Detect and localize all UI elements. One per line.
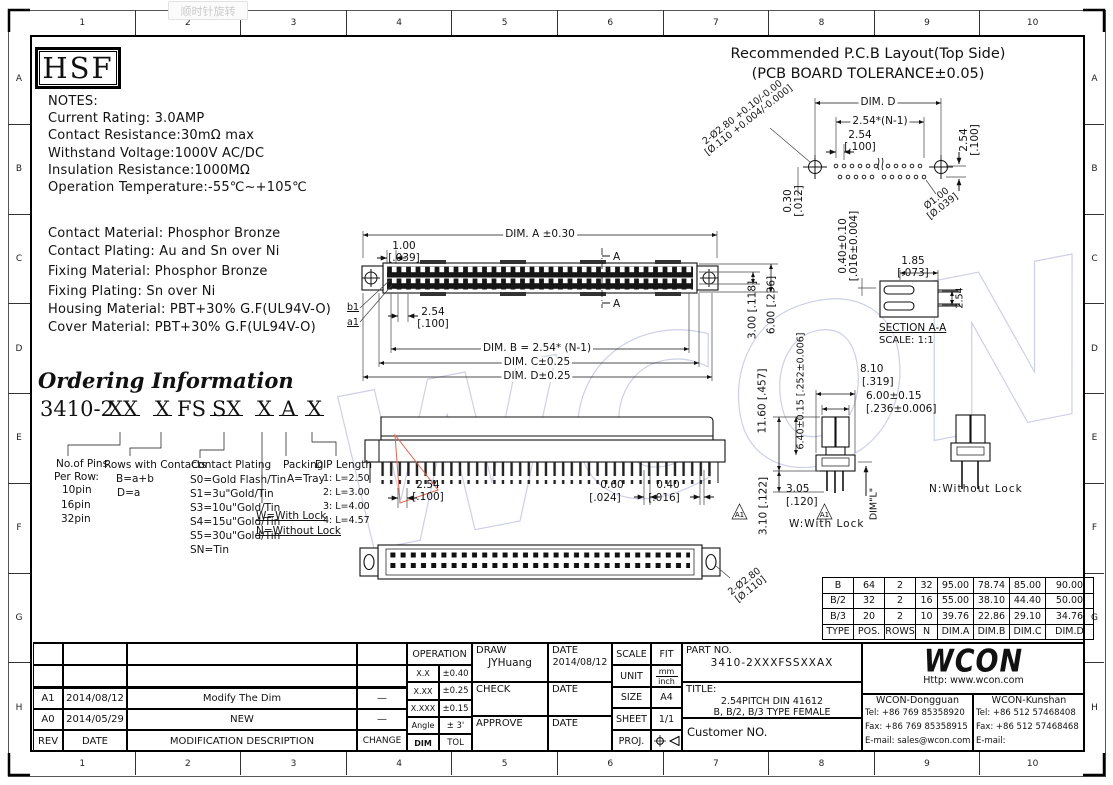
legend-pins-32: 32pin [61, 513, 91, 525]
wcon-kunshan-cell: WCON-Kunshan Tel: +86 512 57468408 Fax: … [973, 694, 1085, 752]
note-contact-resistance: Contact Resistance:30mΩ max [48, 130, 254, 142]
dim-a-label: DIM. A ±0.30 [503, 229, 577, 240]
dongguan-name: WCON-Dongguan [863, 695, 972, 706]
cell: 16 [916, 593, 938, 609]
part-no-cell: PART NO. 3410-2XXXFSSXXAX [682, 643, 862, 682]
rev-header: REV [33, 730, 63, 752]
section-mark-bottom: A [613, 298, 620, 310]
legend-plating-s1: S1=3u"Gold/Tin [190, 488, 274, 500]
title-block-top-line [33, 642, 1085, 644]
cell: 90.00 [1046, 578, 1094, 594]
tol-tol-label: TOL [439, 734, 472, 752]
legend-rows-d: D=a [117, 487, 140, 499]
check-date-cell: DATE [548, 682, 612, 716]
legend-lock-w: W=With Lock [256, 510, 326, 522]
header-cell: DIM.D [1046, 624, 1094, 640]
connector-bottom-view [360, 545, 730, 579]
lead-in: [.039] [388, 252, 420, 264]
tol-xx-value: ±0.40 [439, 665, 472, 682]
tol-dim-label: DIM [407, 734, 439, 752]
cell: 10 [916, 609, 938, 625]
legend-pins-title2: Per Row: [54, 471, 99, 483]
section-tolerance: 0.40±0.10[.016±0.004] [838, 211, 860, 281]
header-cell: TYPE [823, 624, 854, 640]
scale-label: SCALE [612, 643, 651, 665]
title-label: TITLE: [683, 683, 861, 696]
material-housing: Housing Material: PBT+30% G.F(UL94V-O) [48, 304, 331, 316]
rev-cell-empty [33, 643, 63, 665]
tol-xxxx-value: ±0.15 [439, 700, 472, 717]
lv-640: 6.40±0.15 [.252±0.006] [796, 332, 807, 449]
rev-change-header: CHANGE [357, 730, 407, 752]
sv-pin2-mm: 0.40 [656, 479, 679, 491]
sheet-value: 1/1 [651, 708, 682, 730]
kunshan-fax: Fax: +86 512 57468468 [974, 720, 1084, 734]
pcb-offset: 0.30[.012] [783, 185, 805, 217]
legend-dip-title: DIP Length [315, 459, 372, 471]
lv-310: 3.10 [.122] [759, 477, 770, 535]
legend-pins-10: 10pin [62, 484, 92, 496]
ordering-title: Ordering Information [38, 375, 294, 387]
tol-xxxx-label: X.XXX [407, 700, 439, 717]
unit-label: UNIT [612, 665, 651, 687]
tol-angle-value: ± 3' [439, 717, 472, 734]
code-lock: X [255, 403, 274, 416]
section-pitch: 2.54 [955, 287, 966, 308]
sv-pin1-mm: 0.60 [600, 479, 623, 491]
row-a1-label: a1 [347, 317, 359, 329]
svg-text:A1: A1 [735, 511, 744, 519]
part-no-label: PART NO. [683, 644, 861, 657]
cell: 20 [854, 609, 885, 625]
draw-date: 2014/08/12 [549, 657, 611, 668]
cell: 32 [916, 578, 938, 594]
legend-packing-tray: A=Tray [287, 473, 325, 485]
title-cell: TITLE: 2.54PITCH DIN 41612 B, B/2, B/3 T… [682, 682, 862, 718]
section-w-mm: 1.85 [901, 255, 924, 267]
lv-600-in: [.236±0.006] [866, 403, 936, 415]
wcon-dongguan-cell: WCON-Dongguan Tel: +86 769 85358920 Fax:… [862, 694, 973, 752]
code-plating: SX [210, 403, 243, 416]
approve-label: APPROVE [473, 717, 547, 730]
rev-desc-header: MODIFICATION DESCRIPTION [127, 730, 357, 752]
size-label: SIZE [612, 687, 651, 708]
tol-xx-label: X.X [407, 665, 439, 682]
part-number: 3410-2XXXFSSXXAX [683, 657, 861, 669]
projection-symbol [651, 730, 682, 752]
code-packing: A [279, 403, 298, 416]
pcb-pitch-mm: 2.54 [848, 129, 871, 141]
cell: 39.76 [938, 609, 974, 625]
legend-plating-title: Contact Plating [191, 459, 271, 471]
dim-b-label: DIM. B = 2.54* (N-1) [481, 343, 593, 354]
material-cover: Cover Material: PBT+30% G.F(UL94V-O) [48, 322, 316, 334]
approve-cell: APPROVE [472, 716, 548, 752]
section-w-in: [.073] [897, 267, 929, 279]
tol-angle-label: Angle [407, 717, 439, 734]
draw-cell: DRAW JYHuang [472, 643, 548, 682]
date-label: DATE [549, 644, 611, 657]
legend-dip-2: 2: L=3.00 [323, 487, 370, 499]
pcb-tolerance: (PCB BOARD TOLERANCE±0.05) [752, 68, 985, 80]
lv-810-in: [.319] [862, 376, 894, 388]
material-fixing-plating: Fixing Plating: Sn over Ni [48, 286, 215, 298]
tol-xxx-label: X.XX [407, 682, 439, 700]
dim-c-label: DIM. C±0.25 [502, 357, 572, 368]
customer-no-label: Customer NO. [683, 719, 861, 745]
pcb-row-pitch: 2.54[.100] [959, 124, 981, 156]
rev-date-header: DATE [63, 730, 127, 752]
pcb-pitch-span: 2.54*(N-1) [850, 116, 909, 127]
lv-600-mm: 6.00±0.15 [866, 390, 922, 402]
tv-body-height: 6.00 [.236] [767, 276, 778, 334]
sv-pin2-in: [.016] [648, 492, 680, 504]
notes-title: NOTES: [48, 96, 98, 108]
drawing-sheet: 顺时针旋转 12345678910 12345678910 ABCDEFGH A… [0, 0, 1113, 785]
legend-dip-3: 3: L=4.00 [323, 501, 370, 513]
row-b1-label: b1 [347, 302, 359, 314]
lv-dim-l: DIM"L" [869, 488, 880, 520]
drawing-title-2: B, B/2, B/3 TYPE FEMALE [683, 707, 861, 718]
rev-cell-empty [357, 643, 407, 665]
tv-pitch-in: [.100] [417, 318, 449, 330]
cell: 85.00 [1010, 578, 1046, 594]
cell: 38.10 [974, 593, 1010, 609]
size-table: B 64 2 32 95.00 78.74 85.00 90.00 B/2 32… [822, 577, 1094, 640]
first-angle-projection-icon [653, 734, 681, 748]
material-contact: Contact Material: Phosphor Bronze [48, 228, 280, 240]
rev-a1-change: — [357, 687, 407, 709]
note-current-rating: Current Rating: 3.0AMP [48, 113, 204, 125]
code-base: 3410-2 [40, 403, 114, 415]
dongguan-email: E-mail: sales@wcon.com [863, 734, 972, 748]
tol-xxx-value: ±0.25 [439, 682, 472, 700]
hsf-logo-text: HSF [39, 51, 117, 85]
cell: 50.00 [1046, 593, 1094, 609]
header-cell: N [916, 624, 938, 640]
rev-a0-change: — [357, 709, 407, 730]
tv-row-height: 3.00 [.118] [748, 281, 759, 339]
cell: 2 [885, 578, 916, 594]
dongguan-tel: Tel: +86 769 85358920 [863, 706, 972, 720]
draw-date-cell: DATE 2014/08/12 [548, 643, 612, 682]
section-mark-top: A [613, 251, 620, 263]
code-pins: XX [106, 403, 140, 416]
note-insulation-resistance: Insulation Resistance:1000MΩ [48, 165, 250, 177]
cell: 78.74 [974, 578, 1010, 594]
legend-dip-1: 1: L=2.50 [323, 473, 370, 485]
hsf-logo: HSF [35, 47, 121, 89]
lv-810-mm: 8.10 [860, 363, 883, 375]
kunshan-tel: Tel: +86 512 57468408 [974, 706, 1084, 720]
customer-cell: Customer NO. [682, 718, 862, 752]
cell: 64 [854, 578, 885, 594]
code-dip: X [305, 403, 324, 416]
approve-date-cell: DATE [548, 716, 612, 752]
dim-d-label: DIM. D±0.25 [501, 371, 572, 382]
cell: B/2 [823, 593, 854, 609]
code-rows: X [153, 403, 172, 416]
cell: 32 [854, 593, 885, 609]
rev-a0-date: 2014/05/29 [63, 709, 127, 730]
table-row: B/3 20 2 10 39.76 22.86 29.10 34.76 [823, 609, 1094, 625]
header-cell: POS. [854, 624, 885, 640]
check-cell: CHECK [472, 682, 548, 716]
legend-rows-b: B=a+b [116, 473, 154, 485]
cell: 22.86 [974, 609, 1010, 625]
lv-305-mm: 3.05 [786, 483, 809, 495]
wcon-logo: WCON [863, 644, 1084, 680]
cell: 34.76 [1046, 609, 1094, 625]
operation-header: OPERATION [407, 643, 472, 665]
draw-name: JYHuang [473, 657, 547, 669]
dongguan-fax: Fax: +86 769 85358915 [863, 720, 972, 734]
table-row: B 64 2 32 95.00 78.74 85.00 90.00 [823, 578, 1094, 594]
header-cell: DIM.A [938, 624, 974, 640]
section-title: SECTION A-A [879, 322, 946, 334]
material-contact-plating: Contact Plating: Au and Sn over Ni [48, 246, 280, 258]
code-fs: FS [177, 403, 206, 415]
rev-cell-empty [127, 665, 357, 687]
proj-label: PROJ. [612, 730, 651, 752]
lv-1160: 11.60 [.457] [758, 369, 769, 434]
cell: 2 [885, 593, 916, 609]
rev-a1: A1 [33, 687, 63, 709]
legend-plating-s0: S0=Gold Flash/Tin [190, 474, 286, 486]
kunshan-name: WCON-Kunshan [974, 695, 1084, 706]
legend-dip-4: 4: L=4.57 [323, 515, 370, 527]
date-label: DATE [549, 683, 611, 696]
rev-cell-empty [33, 665, 63, 687]
header-cell: ROWS [885, 624, 916, 640]
section-scale: SCALE: 1:1 [879, 335, 934, 347]
with-lock-label: W:With Lock [789, 518, 864, 530]
date-label: DATE [549, 717, 611, 730]
tv-pitch-mm: 2.54 [421, 306, 444, 318]
rev-a0-desc: NEW [127, 709, 357, 730]
note-operation-temperature: Operation Temperature:-55℃~+105℃ [48, 182, 307, 194]
cell: 2 [885, 609, 916, 625]
cell: B/3 [823, 609, 854, 625]
header-cell: DIM.B [974, 624, 1010, 640]
check-label: CHECK [473, 683, 547, 696]
rev-cell-empty [63, 643, 127, 665]
material-fixing: Fixing Material: Phosphor Bronze [48, 266, 268, 278]
kunshan-email: E-mail: salesks@wcon.com [974, 734, 1084, 752]
legend-pins-title1: No.of Pins [56, 458, 108, 470]
rev-cell-empty [127, 643, 357, 665]
unit-value: mminch [651, 665, 682, 687]
sv-pin1-in: [.024] [589, 492, 621, 504]
lead-mm: 1.00 [392, 240, 415, 252]
table-header-row: TYPE POS. ROWS N DIM.A DIM.B DIM.C DIM.D [823, 624, 1094, 640]
wcon-logo-cell: WCON Http: www.wcon.com [862, 643, 1085, 694]
sv-pitch-in: [.100] [412, 491, 444, 503]
rev-cell-empty [357, 665, 407, 687]
cell: 29.10 [1010, 609, 1046, 625]
drawing-title-1: 2.54PITCH DIN 41612 [683, 696, 861, 707]
without-lock-label: N:Without Lock [929, 483, 1023, 495]
pcb-dim-d: DIM. D [858, 97, 897, 108]
cell: 95.00 [938, 578, 974, 594]
legend-pins-16: 16pin [61, 499, 91, 511]
pcb-pitch-in: [.100] [844, 141, 876, 153]
draw-label: DRAW [473, 644, 547, 657]
sv-pitch-mm: 2.54 [416, 479, 439, 491]
header-cell: DIM.C [1010, 624, 1046, 640]
cell: 55.00 [938, 593, 974, 609]
rev-a1-desc: Modify The Dim [127, 687, 357, 709]
note-withstand-voltage: Withstand Voltage:1000V AC/DC [48, 148, 264, 160]
table-row: B/2 32 2 16 55.00 38.10 44.40 50.00 [823, 593, 1094, 609]
rev-a1-date: 2014/08/12 [63, 687, 127, 709]
cell: B [823, 578, 854, 594]
scale-value: FIT [651, 643, 682, 665]
rev-a0: A0 [33, 709, 63, 730]
cell: 44.40 [1010, 593, 1046, 609]
pcb-title: Recommended P.C.B Layout(Top Side) [731, 48, 1006, 60]
rev-cell-empty [63, 665, 127, 687]
legend-plating-sn: SN=Tin [190, 544, 229, 556]
lv-305-in: [.120] [786, 496, 818, 508]
size-value: A4 [651, 687, 682, 708]
sheet-label: SHEET [612, 708, 651, 730]
rotate-clockwise-button[interactable]: 顺时针旋转 [168, 1, 248, 20]
